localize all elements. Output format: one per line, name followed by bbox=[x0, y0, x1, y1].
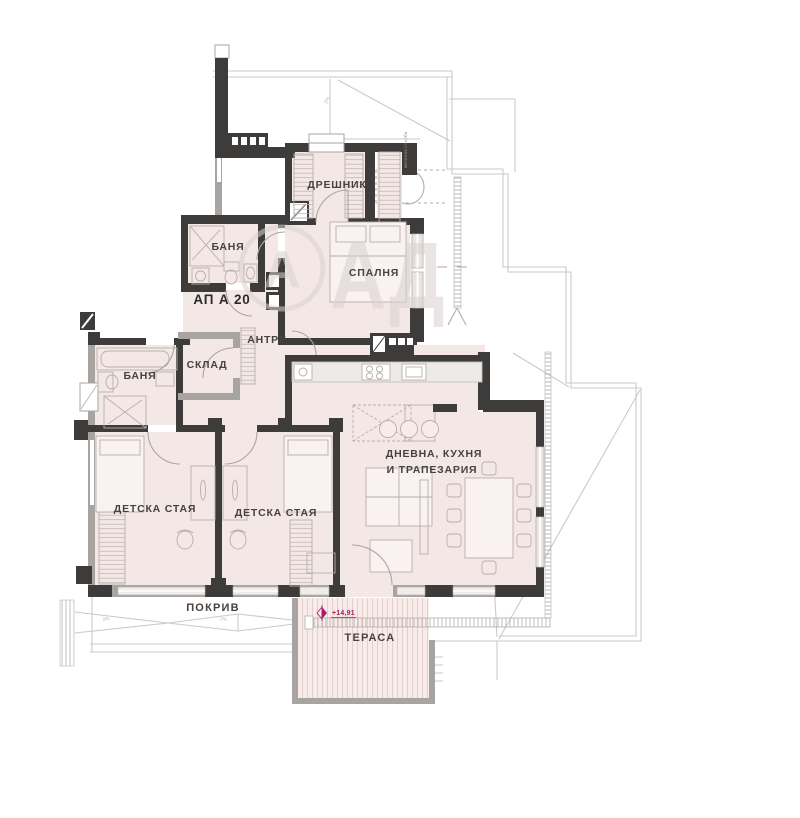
watermark-monogram: А bbox=[263, 241, 301, 299]
label-apartment-number: АП А 20 bbox=[193, 292, 250, 307]
floor-plan-canvas: А АД ДРЕШНИК СПАЛНЯ БАНЯ АП А 20 СКЛАД А… bbox=[0, 0, 800, 818]
label-living-line1: ДНЕВНА, КУХНЯ bbox=[386, 448, 482, 460]
label-hall: АНТРЕ bbox=[247, 334, 287, 346]
label-dressing-room: ДРЕШНИК bbox=[307, 179, 366, 191]
terrace-area bbox=[292, 598, 435, 704]
slope-note-left: 2% bbox=[102, 616, 110, 622]
label-bathroom-top: БАНЯ bbox=[211, 241, 244, 253]
label-bedroom: СПАЛНЯ bbox=[349, 267, 399, 279]
stair-note: метална стълба bbox=[403, 131, 408, 168]
label-kids-room-left: ДЕТСКА СТАЯ bbox=[114, 503, 196, 515]
label-storage: СКЛАД bbox=[187, 359, 228, 371]
floor-plan-drawing: А АД ДРЕШНИК СПАЛНЯ БАНЯ АП А 20 СКЛАД А… bbox=[0, 0, 800, 818]
label-living-line2: И ТРАПЕЗАРИЯ bbox=[387, 464, 478, 476]
elevation-value: +14,91 bbox=[332, 610, 355, 617]
label-terrace: ТЕРАСА bbox=[345, 632, 396, 644]
label-bathroom-left: БАНЯ bbox=[123, 370, 156, 382]
drain-channel bbox=[305, 616, 550, 629]
slope-note-roof: 2% bbox=[323, 96, 330, 104]
label-kids-room-right: ДЕТСКА СТАЯ bbox=[235, 507, 317, 519]
slope-note-mid: 2% bbox=[220, 616, 228, 622]
label-roof: ПОКРИВ bbox=[186, 602, 240, 614]
